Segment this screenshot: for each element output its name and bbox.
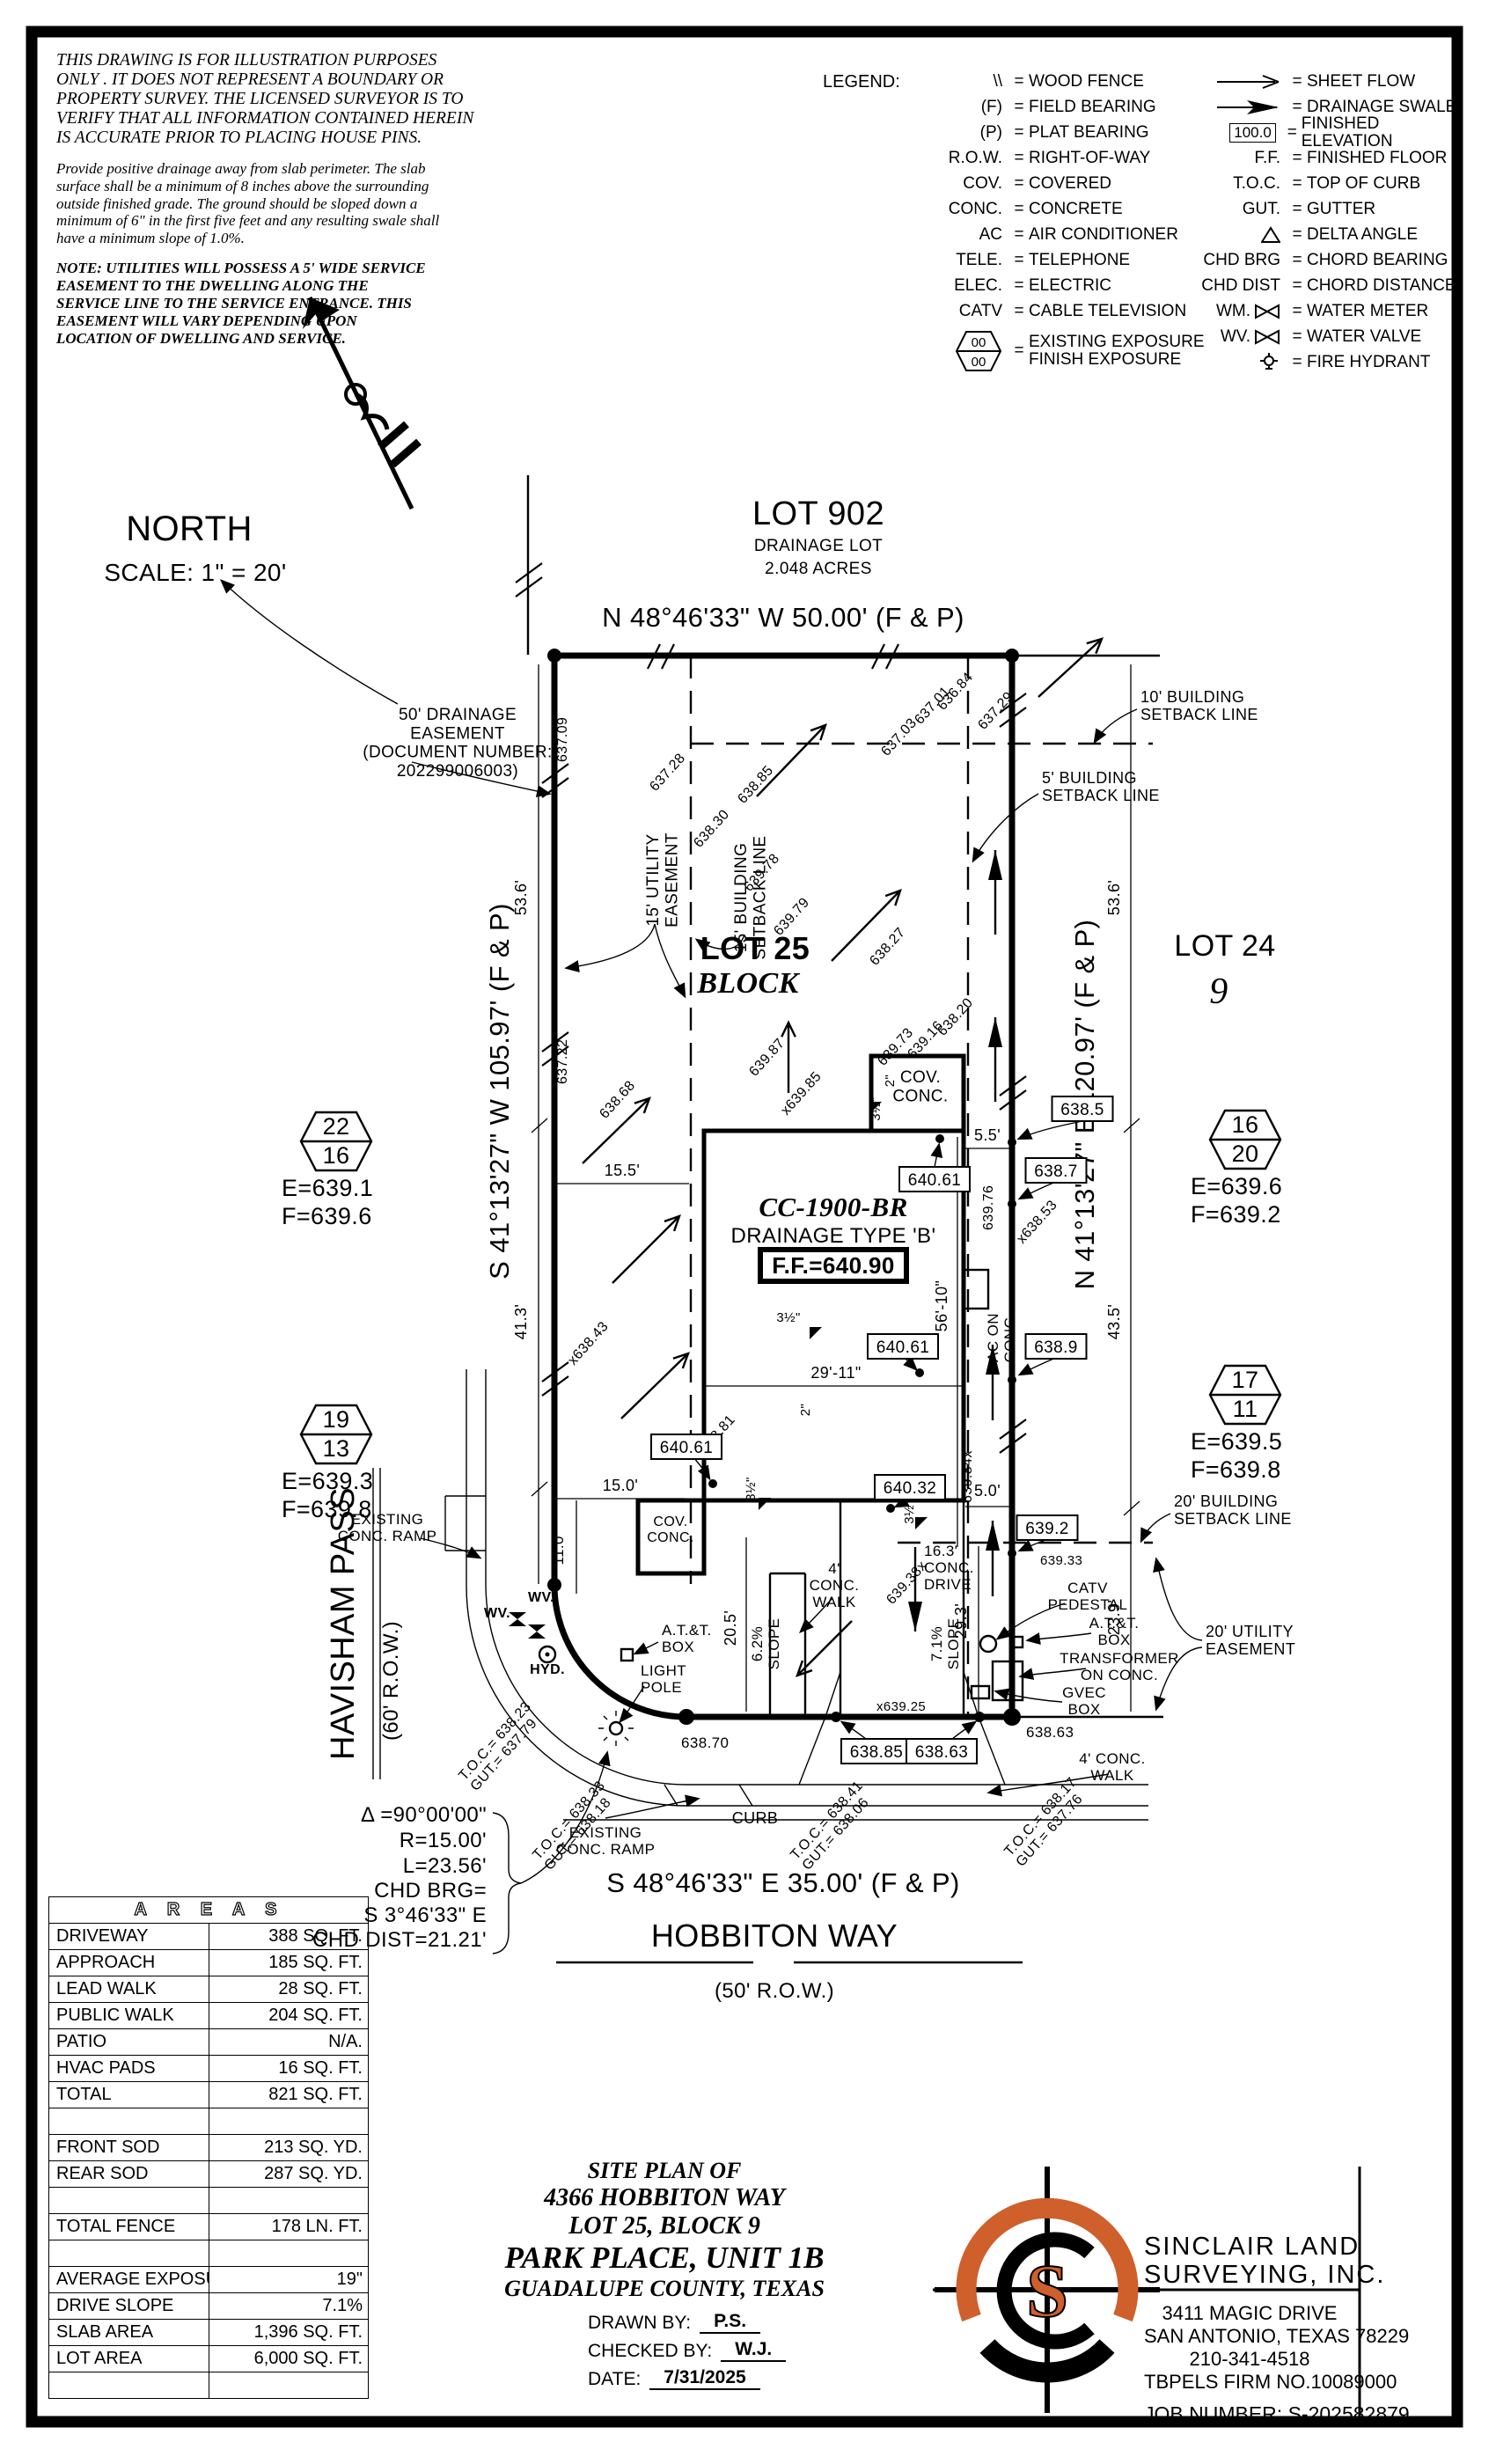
finished-elevation-box: 640.32 — [875, 1475, 945, 1500]
legend-item: WM. =WATER METER — [1185, 298, 1467, 324]
areas-value: 388 SQ. FT. — [209, 1924, 369, 1950]
legend-desc: DRAINAGE SWALE — [1307, 99, 1456, 116]
titleblock-l4: PARK PLACE, UNIT 1B — [458, 2240, 871, 2276]
areas-value — [209, 2240, 369, 2267]
legend-symbol: T.O.C. — [1185, 174, 1287, 194]
plan-label: 638.70 — [681, 1734, 729, 1751]
areas-value — [209, 2372, 369, 2399]
legend-symbol: CATV — [907, 302, 1009, 321]
legend-item: =FIRE HYDRANT — [1185, 349, 1467, 375]
plan-label: COV.CONC. — [892, 1068, 948, 1105]
legend-symbol: WV. — [1185, 327, 1287, 347]
legend-desc: GUTTER — [1307, 201, 1375, 218]
plan-label: A.T.&T.BOX — [662, 1622, 712, 1655]
areas-label: PUBLIC WALK — [49, 2003, 209, 2029]
svg-text:6.2%SLOPE: 6.2%SLOPE — [749, 1618, 782, 1670]
svg-text:x639.25: x639.25 — [876, 1699, 926, 1714]
areas-label: PATIO — [49, 2029, 209, 2056]
legend-symbol: (F) — [907, 98, 1009, 117]
svg-text:4' CONC.WALK: 4' CONC.WALK — [1079, 1750, 1145, 1784]
areas-title: A R E A S — [49, 1897, 369, 1924]
areas-value: 213 SQ. YD. — [209, 2135, 369, 2161]
drainage-swale-arrow — [988, 850, 1002, 935]
areas-row: SLAB AREA1,396 SQ. FT. — [49, 2320, 369, 2346]
areas-value: 821 SQ. FT. — [209, 2082, 369, 2108]
plan-label: 638.20 — [935, 995, 976, 1039]
svg-text:638.27: 638.27 — [867, 925, 908, 969]
legend-symbol: 100.0 — [1185, 123, 1283, 143]
plan-label: 5' BUILDINGSETBACK LINE — [1042, 769, 1160, 804]
svg-text:15.0': 15.0' — [603, 1477, 638, 1494]
plan-label: 637.03 — [878, 715, 920, 759]
areas-row: HVAC PADS16 SQ. FT. — [49, 2056, 369, 2082]
site-plan-sheet: NORTH SCALE: 1" = 20' LOT 902 DRAINAGE L… — [0, 0, 1496, 2464]
areas-value: 178 LN. FT. — [209, 2214, 369, 2240]
legend-desc: CHORD BEARING — [1307, 252, 1448, 269]
curve-chd-brg-label: CHD BRG= — [374, 1879, 487, 1903]
svg-text:29'-11": 29'-11" — [810, 1364, 861, 1382]
areas-value: 28 SQ. FT. — [209, 1976, 369, 2003]
sheet-flow-arrow — [621, 1353, 688, 1419]
plan-label: x639.85 — [778, 1069, 825, 1118]
sheet-flow-icon — [1217, 74, 1280, 90]
plan-label: T.O.C.= 638.41GUT.= 638.06 — [788, 1778, 877, 1874]
svg-text:3½": 3½" — [902, 1500, 917, 1523]
curve-delta: Δ =90°00'00" — [361, 1803, 487, 1827]
svg-text:640.61: 640.61 — [660, 1439, 714, 1457]
legend-symbol — [1185, 226, 1287, 244]
legend-symbol: AC — [907, 225, 1009, 245]
plan-label: WV. — [484, 1606, 510, 1621]
curve-chd-brg: S 3°46'33" E — [363, 1903, 487, 1927]
areas-row: PUBLIC WALK204 SQ. FT. — [49, 2003, 369, 2029]
areas-row: LOT AREA6,000 SQ. FT. — [49, 2346, 369, 2372]
plan-label: 3½" — [776, 1310, 800, 1325]
legend-item: =SHEET FLOW — [1185, 69, 1467, 94]
legend-desc: WOOD FENCE — [1029, 73, 1144, 91]
legend-item: \\=WOOD FENCE — [907, 69, 1206, 94]
areas-label: DRIVE SLOPE — [49, 2293, 209, 2320]
legend-desc: TOP OF CURB — [1307, 175, 1420, 193]
svg-text:637.28: 637.28 — [647, 751, 688, 795]
plan-label: 639.76 — [981, 1185, 996, 1230]
plan-label: TRANSFORMERON CONC. — [1060, 1650, 1179, 1683]
plan-label: 20' UTILITYEASEMENT — [1206, 1623, 1295, 1658]
svg-text:COV.CONC.: COV.CONC. — [647, 1514, 694, 1545]
plan-label: 23.9' — [1105, 1600, 1123, 1635]
svg-text:00: 00 — [972, 355, 986, 370]
company-logo: S — [935, 2167, 1160, 2413]
house-drainage-type: DRAINAGE TYPE 'B' — [731, 1224, 936, 1248]
legend-desc: WATER METER — [1307, 303, 1428, 320]
legend-symbol — [1185, 74, 1287, 90]
light-pole-icon — [610, 1722, 622, 1734]
house-model: CC-1900-BR — [759, 1192, 907, 1222]
finished-elevation-box: 638.9 — [1026, 1334, 1087, 1359]
svg-text:3½": 3½" — [869, 1096, 884, 1120]
plan-label: 11.0' — [550, 1532, 567, 1565]
curve-radius: R=15.00' — [400, 1829, 487, 1852]
svg-text:2": 2" — [883, 1074, 898, 1087]
svg-text:638.85: 638.85 — [735, 763, 776, 807]
svg-text:F=639.6: F=639.6 — [282, 1203, 372, 1229]
legend-desc: TELEPHONE — [1029, 252, 1130, 269]
legend-symbol: CHD DIST — [1185, 276, 1287, 296]
disclaimer-p2: Provide positive drainage away from slab… — [56, 160, 470, 247]
plan-label: 3½" — [744, 1477, 759, 1500]
legend-desc: EXISTING EXPOSURE FINISH EXPOSURE — [1029, 334, 1205, 369]
legend-desc: FINISHED FLOOR — [1307, 150, 1447, 167]
plan-label: 10' BUILDINGSETBACK LINE — [1140, 688, 1258, 723]
areas-label: REAR SOD — [49, 2161, 209, 2188]
svg-text:15.5': 15.5' — [605, 1162, 640, 1179]
svg-text:56'-10": 56'-10" — [933, 1280, 950, 1332]
svg-text:15' BUILDINGSETBACK LINE: 15' BUILDINGSETBACK LINE — [732, 835, 769, 959]
svg-text:638.63: 638.63 — [915, 1743, 969, 1762]
legend-desc: CHORD DISTANCE — [1307, 277, 1456, 295]
plan-label: 2" — [883, 1074, 898, 1087]
legend-desc: PLAT BEARING — [1029, 124, 1149, 142]
areas-row — [49, 2188, 369, 2214]
svg-text:x638.53: x638.53 — [1014, 1198, 1060, 1247]
legend-item: 100.0=FINISHED ELEVATION — [1185, 120, 1467, 145]
plan-label: AC ONCONC. — [985, 1313, 1018, 1363]
svg-text:3½": 3½" — [744, 1477, 759, 1500]
svg-text:A.T.&T.BOX: A.T.&T.BOX — [662, 1622, 712, 1655]
water-valve-icon — [509, 1612, 526, 1626]
legend-col1: \\=WOOD FENCE(F)=FIELD BEARING(P)=PLAT B… — [907, 69, 1206, 378]
legend-item: 00 00=EXISTING EXPOSURE FINISH EXPOSURE — [907, 324, 1206, 378]
svg-text:638.20: 638.20 — [935, 995, 976, 1039]
svg-text:43.5': 43.5' — [1105, 1304, 1123, 1339]
svg-text:640.61: 640.61 — [876, 1338, 930, 1357]
finished-elevation-box: 640.61 — [651, 1434, 722, 1459]
areas-label — [49, 2240, 209, 2267]
street-havisham-row: (60' R.O.W.) — [379, 1621, 403, 1741]
areas-row: FRONT SOD213 SQ. YD. — [49, 2135, 369, 2161]
lot902-line2: DRAINAGE LOT — [754, 537, 883, 555]
sheet-flow-arrow — [1038, 639, 1102, 697]
legend-symbol: F.F. — [1185, 149, 1287, 168]
areas-row: PATION/A. — [49, 2029, 369, 2056]
bearing-west-line: S 41°13'27" W 105.97' (F & P) — [484, 903, 515, 1280]
legend-symbol — [1185, 99, 1287, 115]
legend-symbol: GUT. — [1185, 200, 1287, 219]
svg-text:E=639.6: E=639.6 — [1191, 1173, 1282, 1199]
checked-by-value: W.J. — [721, 2339, 786, 2362]
exposure-marker: 1913E=639.3F=639.8 — [282, 1405, 373, 1522]
areas-row: AVERAGE EXPOSURE19" — [49, 2267, 369, 2293]
areas-row: TOTAL821 SQ. FT. — [49, 2082, 369, 2108]
legend-item: ELEC.=ELECTRIC — [907, 273, 1206, 298]
finished-elevation-box: 639.2 — [1017, 1515, 1078, 1540]
finished-elevation-box: 638.63 — [906, 1739, 977, 1764]
plan-label: 2" — [798, 1404, 813, 1416]
plan-label: HYD. — [530, 1662, 565, 1677]
plan-label: 53.6' — [512, 880, 530, 915]
legend-symbol: CHD BRG — [1185, 251, 1287, 270]
svg-text:637.09: 637.09 — [555, 717, 570, 762]
svg-text:29.3': 29.3' — [952, 1603, 970, 1639]
plan-label: 20' BUILDINGSETBACK LINE — [1174, 1492, 1292, 1528]
svg-text:TRANSFORMERON CONC.: TRANSFORMERON CONC. — [1060, 1650, 1179, 1683]
areas-value: 19" — [209, 2267, 369, 2293]
svg-text:639.84x: 639.84x — [960, 1450, 975, 1503]
areas-label — [49, 2188, 209, 2214]
areas-label: AVERAGE EXPOSURE — [49, 2267, 209, 2293]
areas-row: DRIVEWAY388 SQ. FT. — [49, 1924, 369, 1950]
curve-length: L=23.56' — [403, 1854, 487, 1878]
areas-row: APPROACH185 SQ. FT. — [49, 1950, 369, 1976]
legend-symbol: TELE. — [907, 251, 1009, 270]
legend-desc: CABLE TELEVISION — [1029, 303, 1186, 320]
svg-text:E=639.3: E=639.3 — [282, 1468, 373, 1494]
legend-symbol: ELEC. — [907, 276, 1009, 296]
exposure-marker: 2216E=639.1F=639.6 — [282, 1112, 373, 1229]
legend-item: =DELTA ANGLE — [1185, 222, 1467, 247]
areas-row: REAR SOD287 SQ. YD. — [49, 2161, 369, 2188]
legend-desc: WATER VALVE — [1307, 328, 1421, 346]
svg-text:4'CONC.WALK: 4'CONC.WALK — [810, 1560, 860, 1610]
titleblock-l3: LOT 25, BLOCK 9 — [458, 2212, 871, 2240]
company-addr2: SAN ANTONIO, TEXAS 78229 — [1144, 2325, 1355, 2348]
plan-label: 638.85 — [735, 763, 776, 807]
finished-elevation-box: 638.7 — [1026, 1158, 1087, 1183]
svg-text:50' DRAINAGEEASEMENT(DOCUMENT: 50' DRAINAGEEASEMENT(DOCUMENT NUMBER:202… — [363, 706, 552, 781]
drainage-swale-icon — [1217, 99, 1280, 115]
svg-text:639.33: 639.33 — [1040, 1553, 1082, 1568]
areas-value: 6,000 SQ. FT. — [209, 2346, 369, 2372]
svg-text:F=639.2: F=639.2 — [1191, 1201, 1281, 1228]
job-number: JOB NUMBER: S-202582879 — [1144, 2402, 1355, 2426]
plan-label: WV. — [528, 1590, 554, 1605]
svg-text:F=639.8: F=639.8 — [1191, 1456, 1281, 1483]
plan-label: x639.25 — [876, 1699, 926, 1714]
legend-item: WV. =WATER VALVE — [1185, 324, 1467, 349]
areas-row: LEAD WALK28 SQ. FT. — [49, 1976, 369, 2003]
legend-item: GUT.=GUTTER — [1185, 196, 1467, 222]
drawn-by-value: P.S. — [700, 2311, 760, 2334]
date-value: 7/31/2025 — [649, 2367, 759, 2390]
disclaimer-p1: THIS DRAWING IS FOR ILLUSTRATION PURPOSE… — [56, 51, 477, 148]
svg-text:x638.43: x638.43 — [565, 1319, 612, 1368]
legend-item: CATV=CABLE TELEVISION — [907, 298, 1206, 324]
water-valve-icon — [528, 1624, 546, 1639]
plan-label: 639.84x — [960, 1450, 975, 1503]
checked-by-label: CHECKED BY: — [588, 2341, 712, 2362]
house-ff-value: F.F.=640.90 — [772, 1252, 895, 1279]
disclaimer-block: THIS DRAWING IS FOR ILLUSTRATION PURPOSE… — [56, 51, 477, 360]
svg-text:638.5: 638.5 — [1060, 1101, 1104, 1119]
finished-elevation-box: 640.61 — [868, 1334, 938, 1359]
plan-label: 15.5' — [605, 1162, 640, 1179]
plan-label: GVECBOX — [1062, 1684, 1106, 1718]
legend-symbol: COV. — [907, 174, 1009, 194]
areas-value: N/A. — [209, 2029, 369, 2056]
legend-item: (F)=FIELD BEARING — [907, 94, 1206, 120]
legend-symbol: (P) — [907, 123, 1009, 143]
company-addr4: TBPELS FIRM NO.10089000 — [1144, 2371, 1355, 2394]
areas-label: DRIVEWAY — [49, 1924, 209, 1950]
bearing-south-line: S 48°46'33" E 35.00' (F & P) — [606, 1867, 959, 1898]
areas-label: FRONT SOD — [49, 2135, 209, 2161]
legend-item: TELE.=TELEPHONE — [907, 247, 1206, 273]
company-name1: SINCLAIR LAND — [1144, 2233, 1355, 2262]
plan-label: 56'-10" — [933, 1280, 950, 1332]
svg-text:15' UTILITYEASEMENT: 15' UTILITYEASEMENT — [644, 832, 681, 928]
plan-label: 15' UTILITYEASEMENT — [644, 832, 681, 928]
svg-text:639.76: 639.76 — [981, 1185, 996, 1230]
legend-item: (P)=PLAT BEARING — [907, 120, 1206, 145]
legend-desc: AIR CONDITIONER — [1029, 226, 1178, 244]
legend-item: R.O.W.=RIGHT-OF-WAY — [907, 145, 1206, 171]
plan-label: LIGHTPOLE — [641, 1662, 686, 1696]
svg-text:HYD.: HYD. — [530, 1662, 565, 1677]
plan-label: COV.CONC. — [647, 1514, 694, 1545]
areas-label: HVAC PADS — [49, 2056, 209, 2082]
plan-label: 29.3' — [952, 1603, 970, 1639]
plan-label: 638.63 — [1026, 1724, 1074, 1741]
plan-label: 638.30 — [691, 807, 732, 851]
areas-value: 1,396 SQ. FT. — [209, 2320, 369, 2346]
plan-label: 3½" — [869, 1096, 884, 1120]
company-name2: SURVEYING, INC. — [1144, 2262, 1355, 2290]
svg-text:637.03: 637.03 — [878, 715, 920, 759]
svg-text:639.2: 639.2 — [1025, 1520, 1069, 1538]
svg-text:11.0': 11.0' — [550, 1532, 567, 1565]
block9-label: 9 — [1209, 972, 1228, 1012]
svg-text:E=639.1: E=639.1 — [282, 1175, 373, 1201]
exposure-marker: 1711E=639.5F=639.8 — [1191, 1366, 1282, 1483]
scale-label: SCALE: 1" = 20' — [104, 559, 286, 586]
exposure-hexagon-icon: 00 00 — [955, 330, 1002, 372]
legend-desc: COVERED — [1029, 175, 1111, 193]
plan-label: CURB — [732, 1809, 779, 1827]
plan-label: 5.5' — [974, 1126, 1001, 1144]
legend-symbol: 00 00 — [907, 330, 1009, 372]
svg-text:x639.85: x639.85 — [778, 1069, 825, 1118]
legend-symbol: WM. — [1185, 302, 1287, 321]
legend-symbol — [1185, 352, 1287, 373]
svg-text:638.7: 638.7 — [1034, 1162, 1078, 1181]
svg-text:LIGHTPOLE: LIGHTPOLE — [641, 1662, 686, 1696]
svg-text:637.22: 637.22 — [555, 1039, 570, 1084]
svg-text:10' BUILDINGSETBACK LINE: 10' BUILDINGSETBACK LINE — [1140, 688, 1258, 723]
legend-desc: RIGHT-OF-WAY — [1029, 150, 1150, 167]
plan-label: 639.87 — [746, 1036, 788, 1080]
areas-label: TOTAL — [49, 2082, 209, 2108]
plan-label: 53.6' — [1105, 880, 1123, 915]
delta-angle-icon — [1261, 226, 1280, 244]
areas-row: DRIVE SLOPE7.1% — [49, 2293, 369, 2320]
svg-text:5' BUILDINGSETBACK LINE: 5' BUILDINGSETBACK LINE — [1042, 769, 1160, 804]
areas-label: TOTAL FENCE — [49, 2214, 209, 2240]
finished-elevation-icon: 100.0 — [1229, 123, 1276, 143]
plan-label: 638.27 — [867, 925, 908, 969]
exposure-marker: 1620E=639.6F=639.2 — [1191, 1111, 1282, 1228]
lot24-label: LOT 24 — [1174, 929, 1275, 963]
svg-text:17: 17 — [1232, 1367, 1259, 1393]
plan-label: 637.09 — [555, 717, 570, 762]
legend-symbol: R.O.W. — [907, 149, 1009, 168]
svg-text:640.61: 640.61 — [908, 1171, 962, 1190]
svg-text:638.30: 638.30 — [691, 807, 732, 851]
legend-title: LEGEND: — [823, 72, 900, 92]
plan-label: 4' CONC.WALK — [1079, 1750, 1145, 1784]
svg-text:WV.: WV. — [528, 1590, 554, 1605]
fire-hydrant-icon — [1258, 352, 1280, 373]
plan-label: 20.5' — [722, 1610, 739, 1646]
areas-label: SLAB AREA — [49, 2320, 209, 2346]
svg-text:638.70: 638.70 — [681, 1734, 729, 1751]
plan-label: 15' BUILDINGSETBACK LINE — [732, 835, 769, 959]
svg-text:T.O.C.= 638.41GUT.= 638.06: T.O.C.= 638.41GUT.= 638.06 — [788, 1778, 877, 1874]
areas-row — [49, 2372, 369, 2399]
svg-text:53.6': 53.6' — [512, 880, 530, 915]
svg-text:16: 16 — [1232, 1111, 1259, 1138]
curve-data-bracket — [493, 1813, 521, 1954]
att-box-icon — [621, 1649, 633, 1661]
areas-label — [49, 2108, 209, 2135]
svg-text:11: 11 — [1233, 1396, 1258, 1422]
svg-text:20: 20 — [1232, 1140, 1259, 1167]
plan-label: 639.33 — [1040, 1553, 1082, 1568]
legend-col2: =SHEET FLOW =DRAINAGE SWALE100.0=FINISHE… — [1185, 69, 1467, 375]
legend-desc: SHEET FLOW — [1307, 73, 1415, 91]
legend-item: T.O.C.=TOP OF CURB — [1185, 171, 1467, 196]
areas-value: 16 SQ. FT. — [209, 2056, 369, 2082]
legend-desc: ELECTRIC — [1029, 277, 1111, 295]
plan-label: 637.28 — [647, 751, 688, 795]
plan-label: 29'-11" — [810, 1364, 861, 1382]
plan-label: 4'CONC.WALK — [810, 1560, 860, 1610]
svg-text:E=639.5: E=639.5 — [1191, 1428, 1282, 1455]
legend-desc: FIELD BEARING — [1029, 99, 1156, 116]
legend: LEGEND: \\=WOOD FENCE(F)=FIELD BEARING(P… — [823, 69, 1465, 456]
plan-label: 43.5' — [1105, 1304, 1123, 1339]
legend-item: CHD BRG=CHORD BEARING — [1185, 247, 1467, 273]
areas-table: A R E A S DRIVEWAY388 SQ. FT.APPROACH185… — [48, 1896, 369, 2399]
svg-text:53.6': 53.6' — [1105, 880, 1123, 915]
legend-item: CONC.=CONCRETE — [907, 196, 1206, 222]
plan-label: x638.43 — [565, 1319, 612, 1368]
svg-text:20' BUILDINGSETBACK LINE: 20' BUILDINGSETBACK LINE — [1174, 1492, 1292, 1528]
svg-text:5.0': 5.0' — [974, 1482, 1001, 1500]
areas-value: 185 SQ. FT. — [209, 1950, 369, 1976]
svg-text:2": 2" — [798, 1404, 813, 1416]
street-hobbiton: HOBBITON WAY — [651, 1918, 898, 1954]
svg-text:AC ONCONC.: AC ONCONC. — [985, 1313, 1018, 1363]
svg-text:638.85: 638.85 — [850, 1743, 904, 1762]
areas-label — [49, 2372, 209, 2399]
company-addr3: 210-341-4518 — [1144, 2348, 1355, 2371]
svg-text:00: 00 — [972, 335, 986, 350]
svg-text:F=639.8: F=639.8 — [282, 1496, 372, 1522]
lot902-name: LOT 902 — [752, 495, 884, 532]
sheet-flow-arrow — [781, 1023, 796, 1093]
plan-label: 41.3' — [512, 1304, 530, 1339]
svg-text:638.63: 638.63 — [1026, 1724, 1074, 1741]
date-label: DATE: — [588, 2369, 641, 2390]
areas-row — [49, 2240, 369, 2267]
titleblock-credits: DRAWN BY: P.S. CHECKED BY: W.J. DATE: 7/… — [588, 2311, 786, 2390]
titleblock-l1: SITE PLAN OF — [458, 2158, 871, 2184]
areas-value: 7.1% — [209, 2293, 369, 2320]
water-bowtie-icon — [1254, 329, 1280, 345]
street-hobbiton-row: (50' R.O.W.) — [715, 1979, 834, 2003]
svg-text:23.9': 23.9' — [1105, 1600, 1123, 1635]
legend-desc: FIRE HYDRANT — [1307, 354, 1430, 371]
